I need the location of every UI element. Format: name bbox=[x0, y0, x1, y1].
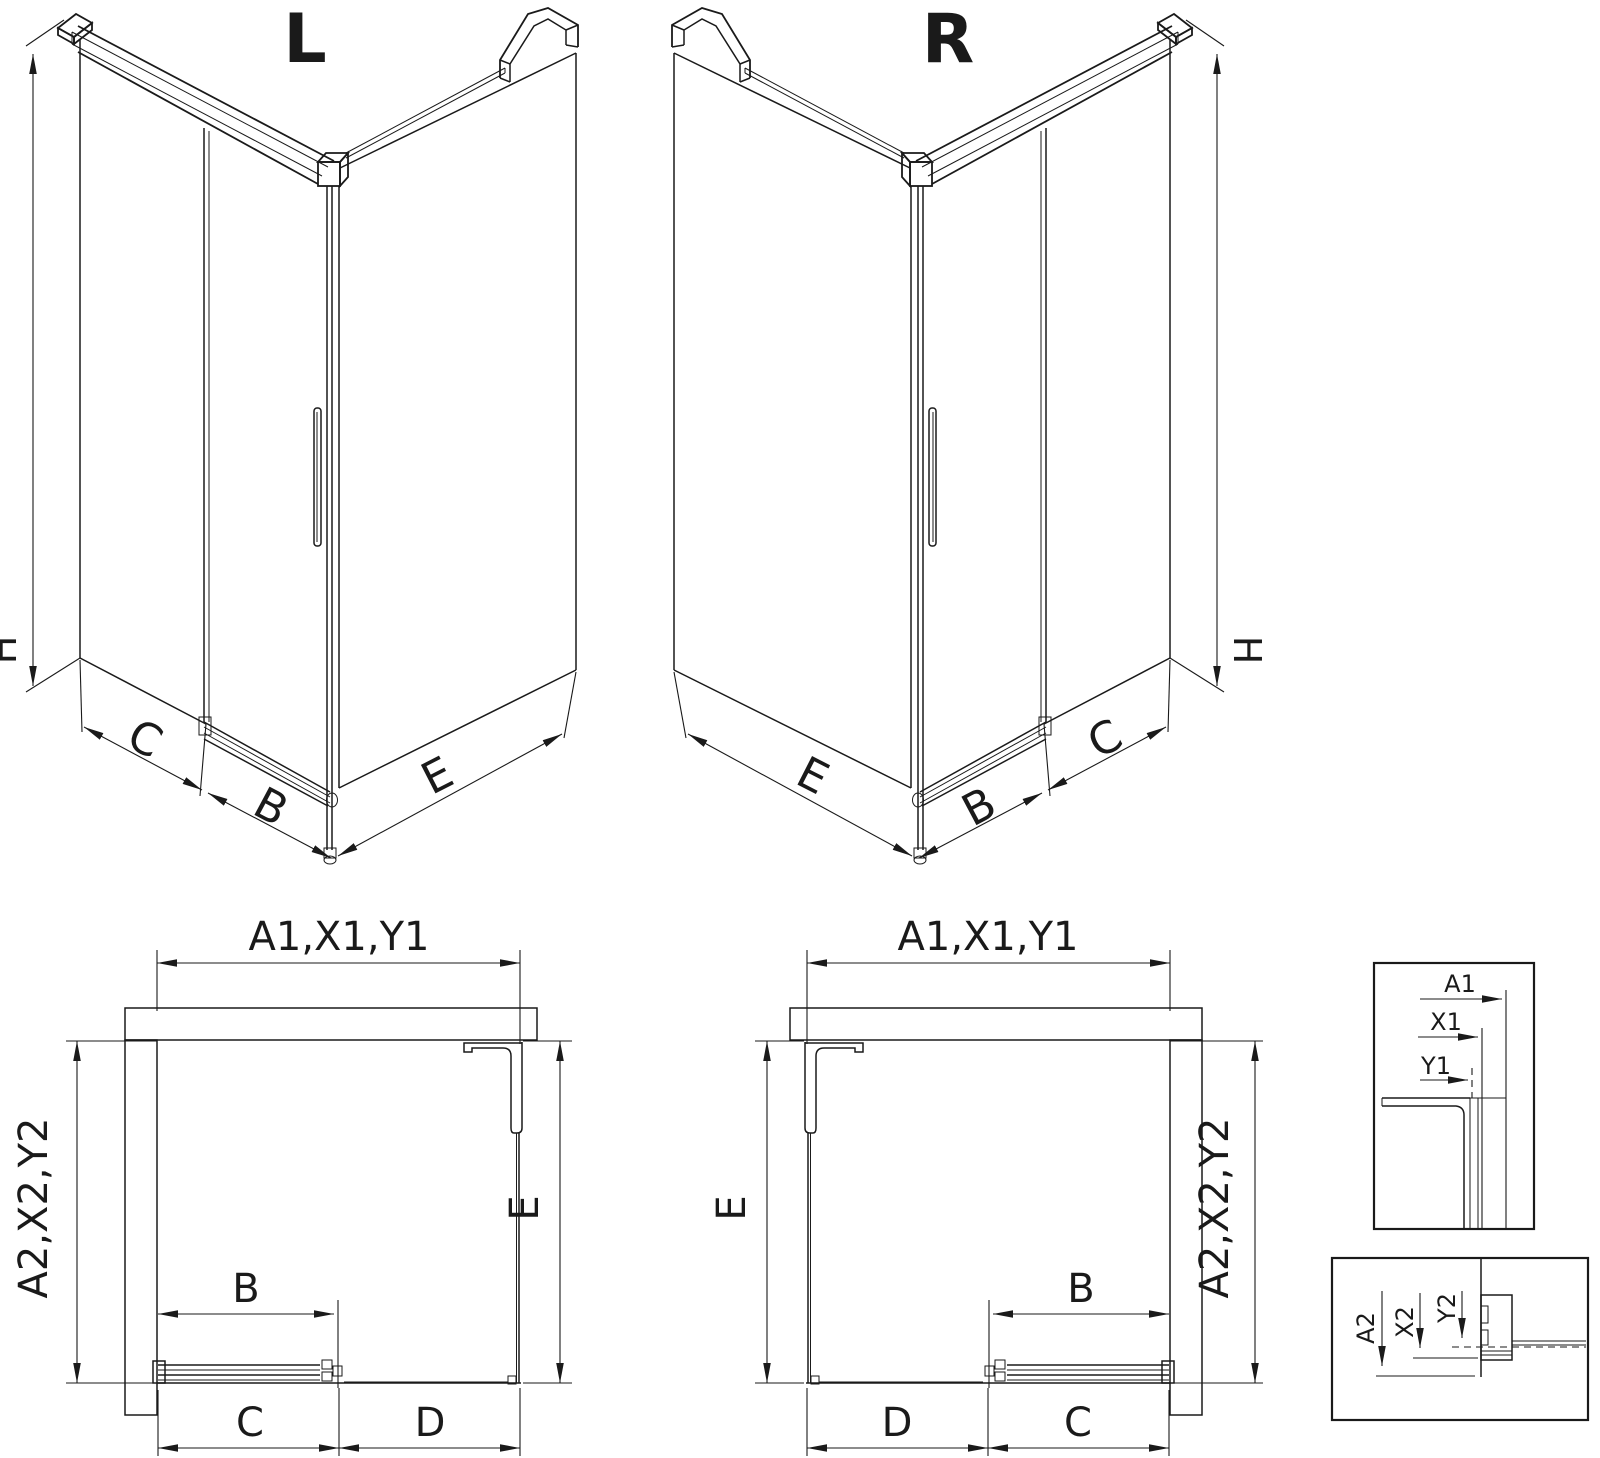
dim-d-c: D C bbox=[807, 1388, 1169, 1456]
dim-a2-label: A2 bbox=[1352, 1312, 1380, 1344]
dim-d-label: D bbox=[415, 1400, 446, 1446]
fixed-panel-glass-right bbox=[1044, 40, 1170, 724]
side-panel-bracket bbox=[805, 1042, 863, 1383]
dim-width-label: A1,X1,Y1 bbox=[898, 914, 1079, 960]
dim-c-left: C bbox=[80, 660, 206, 796]
plan-view-left: A1,X1,Y1 A2,X2,Y2 E bbox=[11, 914, 572, 1456]
dim-e-label: E bbox=[502, 1195, 548, 1220]
sliding-door-track bbox=[806, 1360, 1174, 1384]
fixed-panel-glass-left bbox=[80, 40, 206, 724]
dim-c-d: C D bbox=[158, 1388, 520, 1456]
dim-e-label: E bbox=[413, 747, 461, 805]
dim-e-label: E bbox=[789, 747, 837, 805]
technical-drawing-page: L bbox=[0, 0, 1600, 1458]
dim-y2-label: Y2 bbox=[1433, 1293, 1461, 1324]
dim-e-right: E bbox=[674, 672, 912, 856]
wall-top-hatched bbox=[125, 1008, 537, 1040]
wall-left-hatched bbox=[125, 1040, 157, 1415]
iso-view-right: R bbox=[672, 0, 1269, 864]
iso-right-title: R bbox=[922, 0, 974, 79]
dim-x2-label: X2 bbox=[1391, 1306, 1419, 1338]
dim-depth-label: A2,X2,Y2 bbox=[11, 1118, 57, 1299]
corner-connector bbox=[902, 153, 932, 186]
dim-depth: A2,X2,Y2 bbox=[1170, 1041, 1263, 1383]
dim-c-label: C bbox=[1080, 709, 1131, 768]
dim-h-label: H bbox=[0, 636, 25, 665]
sliding-door-seam bbox=[1041, 128, 1046, 722]
dim-width-label: A1,X1,Y1 bbox=[249, 914, 430, 960]
sliding-door-track bbox=[153, 1360, 521, 1384]
dim-b-label: B bbox=[954, 778, 1005, 837]
door-handle bbox=[314, 408, 321, 546]
dim-b-label: B bbox=[232, 1266, 259, 1312]
dim-b-left: B bbox=[208, 778, 331, 858]
wall-top-hatched bbox=[790, 1008, 1202, 1040]
dim-e-left: E bbox=[338, 672, 576, 856]
dim-c-right: C bbox=[1044, 660, 1170, 796]
plan-view-right: A1,X1,Y1 A2,X2,Y2 E bbox=[709, 914, 1263, 1456]
rail-profile-section bbox=[1481, 1295, 1586, 1360]
dim-b-right: B bbox=[919, 778, 1042, 858]
dim-c-label: C bbox=[1064, 1400, 1092, 1446]
stabilizer-bar bbox=[745, 68, 904, 158]
side-panel-glass-right bbox=[339, 53, 576, 788]
dim-x1-label: X1 bbox=[1430, 1008, 1462, 1036]
dim-a1-label: A1 bbox=[1444, 970, 1476, 998]
wall-profile-section bbox=[1382, 1098, 1506, 1229]
dim-depth: A2,X2,Y2 bbox=[11, 1041, 157, 1383]
dim-h-label: H bbox=[1225, 636, 1269, 665]
detail-width-references: A1 X1 Y1 bbox=[1374, 963, 1534, 1229]
corner-post bbox=[914, 186, 926, 864]
dim-width: A1,X1,Y1 bbox=[807, 914, 1170, 1044]
iso-view-left: L bbox=[0, 0, 578, 864]
corner-post bbox=[324, 186, 336, 864]
dim-e: E bbox=[502, 1041, 572, 1383]
dim-depth-label: A2,X2,Y2 bbox=[1192, 1118, 1238, 1299]
shower-enclosure-diagram: L bbox=[0, 0, 1600, 1458]
dim-b-label: B bbox=[1067, 1266, 1094, 1312]
dim-y1-label: Y1 bbox=[1420, 1052, 1451, 1080]
side-panel-glass-left bbox=[674, 53, 911, 788]
dim-e-label: E bbox=[709, 1195, 755, 1220]
dim-b-label: B bbox=[246, 778, 297, 837]
dim-c-label: C bbox=[236, 1400, 264, 1446]
detail-depth-references: A2 X2 Y2 bbox=[1332, 1258, 1588, 1420]
dim-width: A1,X1,Y1 bbox=[157, 914, 520, 1044]
door-handle bbox=[929, 408, 936, 546]
dim-d-label: D bbox=[882, 1400, 913, 1446]
dim-height-left: H bbox=[0, 20, 80, 692]
dim-e: E bbox=[709, 1041, 804, 1383]
stabilizer-bar bbox=[346, 68, 505, 158]
iso-left-title: L bbox=[283, 0, 326, 79]
glass-section-hatched bbox=[1470, 1098, 1478, 1229]
corner-connector bbox=[318, 153, 348, 186]
dim-height-right: H bbox=[1170, 20, 1269, 692]
sliding-door-seam bbox=[204, 128, 209, 722]
dim-c-label: C bbox=[119, 709, 170, 768]
detail-box-border bbox=[1374, 963, 1534, 1229]
